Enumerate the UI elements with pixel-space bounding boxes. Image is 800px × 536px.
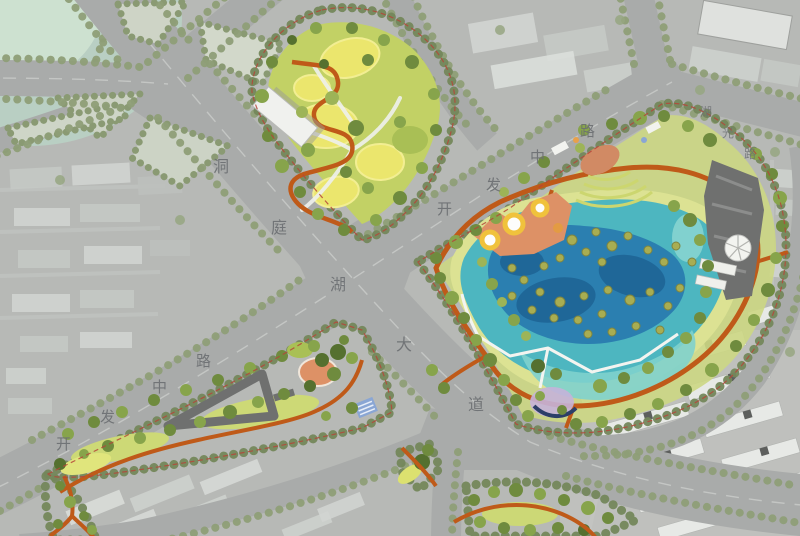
kaifa-sw-char-4: 路 — [196, 352, 211, 370]
play-ring-3 — [533, 201, 547, 215]
avenue-char-1: 洞 — [213, 157, 229, 176]
kaifa-ne-char-4: 路 — [580, 122, 595, 140]
site-plan-map: 洞 庭 湖 大 道 开 发 中 路 开 发 中 路 湖 光 路 — [0, 0, 800, 536]
huguang-char-2: 光 — [722, 126, 734, 140]
avenue-char-4: 大 — [396, 335, 412, 354]
huguang-char-1: 湖 — [700, 104, 712, 119]
hill-park-lawn — [392, 126, 428, 154]
play-ring-1 — [482, 232, 498, 248]
kaifa-ne-char-3: 中 — [530, 148, 545, 166]
huguang-char-3: 路 — [744, 146, 756, 161]
master-plan-svg: 洞 庭 湖 大 道 开 发 中 路 开 发 中 路 湖 光 路 — [0, 0, 800, 536]
kaifa-ne-char-2: 发 — [486, 176, 501, 194]
kaifa-sw-char-2: 发 — [100, 408, 115, 426]
play-ring-2 — [505, 215, 523, 233]
avenue-char-3: 湖 — [330, 275, 346, 294]
kaifa-ne-char-1: 开 — [437, 200, 452, 218]
play-dot — [553, 223, 563, 233]
kaifa-sw-char-3: 中 — [152, 378, 167, 396]
avenue-char-5: 道 — [468, 395, 484, 414]
kaifa-sw-char-1: 开 — [56, 435, 71, 453]
avenue-char-2: 庭 — [271, 218, 287, 237]
